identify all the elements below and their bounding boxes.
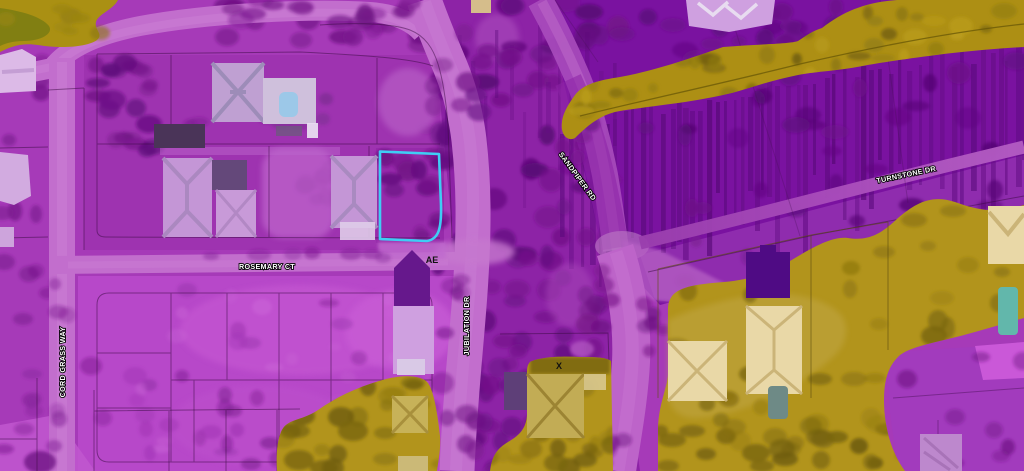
svg-text:AE: AE <box>426 255 439 265</box>
svg-text:JUBILATION DR: JUBILATION DR <box>462 296 471 355</box>
svg-text:ROSEMARY CT: ROSEMARY CT <box>239 262 295 271</box>
svg-text:CORD GRASS WAY: CORD GRASS WAY <box>58 327 67 398</box>
svg-text:X: X <box>556 361 562 371</box>
